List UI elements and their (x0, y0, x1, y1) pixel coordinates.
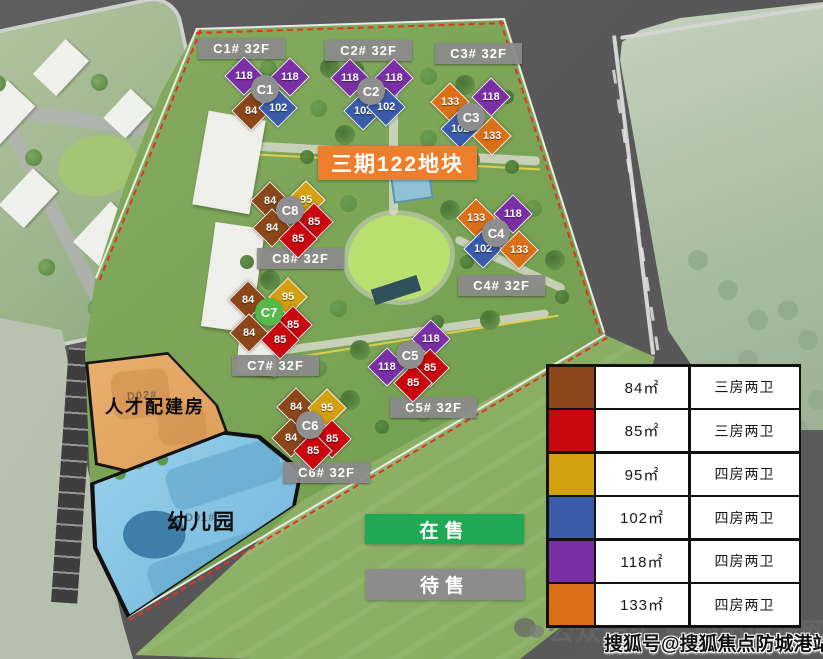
unit-legend-table: 84㎡三房两卫85㎡三房两卫95㎡四房两卫102㎡四房两卫118㎡四房两卫133… (546, 364, 801, 628)
building-circle-c2[interactable]: C2 (357, 77, 385, 105)
building-circle-c8[interactable]: C8 (276, 196, 304, 224)
legend-swatch-85 (549, 410, 594, 451)
legend-size-cell: 95㎡ (596, 454, 688, 495)
building-label-c1[interactable]: C1# 32F (198, 38, 285, 59)
building-circle-c6[interactable]: C6 (296, 411, 324, 439)
building-circle-c7[interactable]: C7 (255, 298, 283, 326)
building-label-c2[interactable]: C2# 32F (325, 40, 412, 61)
building-label-c7[interactable]: C7# 32F (232, 355, 319, 376)
legend-rooms-cell: 四房两卫 (691, 584, 799, 625)
legend-size-cell: 102㎡ (596, 497, 688, 538)
building-label-c3[interactable]: C3# 32F (435, 43, 522, 64)
building-circle-c4[interactable]: C4 (482, 219, 510, 247)
building-label-c6[interactable]: C6# 32F (283, 462, 370, 483)
phase-banner: 三期122地块 (318, 146, 477, 180)
legend-swatch-84 (549, 367, 594, 408)
building-circle-c1[interactable]: C1 (251, 75, 279, 103)
building-circle-c3[interactable]: C3 (457, 103, 485, 131)
legend-rooms-cell: 三房两卫 (691, 367, 799, 408)
building-label-c5[interactable]: C5# 32F (390, 397, 477, 418)
wechat-icon (514, 616, 544, 642)
legend-rooms-cell: 四房两卫 (691, 541, 799, 582)
site-plan-map: D02# 人才配建房 D01# 幼儿园 C1# 32F11811884102C1… (0, 0, 823, 659)
legend-swatch-95 (549, 454, 594, 495)
legend-size-cell: 118㎡ (596, 541, 688, 582)
legend-swatch-102 (549, 497, 594, 538)
legend-size-cell: 84㎡ (596, 367, 688, 408)
legend-swatch-118 (549, 541, 594, 582)
legend-swatch-133 (549, 584, 594, 625)
building-label-c4[interactable]: C4# 32F (458, 275, 545, 296)
building-circle-c5[interactable]: C5 (396, 341, 424, 369)
legend-size-cell: 85㎡ (596, 410, 688, 451)
legend-size-cell: 133㎡ (596, 584, 688, 625)
status-chip-onsale[interactable]: 在售 (365, 514, 524, 544)
legend-rooms-cell: 三房两卫 (691, 410, 799, 451)
legend-rooms-cell: 四房两卫 (691, 454, 799, 495)
sohu-watermark: 搜狐号@搜狐焦点防城港站 (604, 629, 823, 656)
legend-rooms-cell: 四房两卫 (691, 497, 799, 538)
status-chip-pending[interactable]: 待售 (366, 569, 524, 600)
